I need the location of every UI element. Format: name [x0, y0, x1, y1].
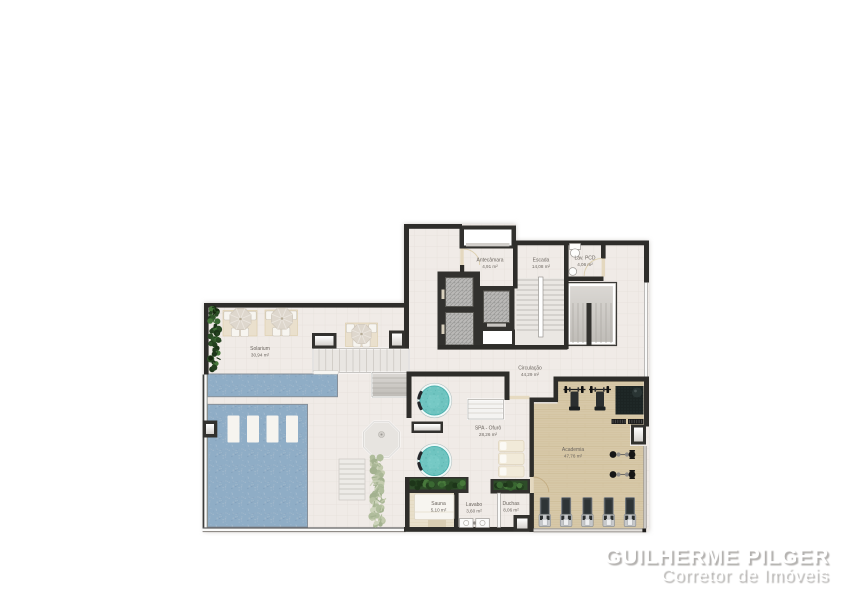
svg-text:Antecâmara: Antecâmara: [477, 258, 504, 264]
svg-text:44,29 m²: 44,29 m²: [521, 372, 540, 377]
svg-text:3,60 m²: 3,60 m²: [466, 509, 482, 514]
svg-text:Corretor de Imóveis: Corretor de Imóveis: [661, 565, 829, 585]
svg-text:Academia: Academia: [562, 447, 584, 453]
svg-text:Lav. PCD: Lav. PCD: [574, 256, 595, 262]
svg-text:30,94 m²: 30,94 m²: [251, 353, 270, 358]
svg-text:4,91 m²: 4,91 m²: [482, 264, 498, 269]
svg-text:SPA - Ofurô: SPA - Ofurô: [475, 426, 502, 432]
svg-text:Escada: Escada: [533, 258, 550, 264]
svg-text:8,06 m²: 8,06 m²: [503, 508, 519, 513]
svg-text:Duchas: Duchas: [503, 501, 520, 507]
svg-text:28,26 m²: 28,26 m²: [479, 432, 498, 437]
svg-text:Solarium: Solarium: [250, 346, 270, 352]
svg-text:4,06 m²: 4,06 m²: [577, 262, 593, 267]
svg-text:Sauna: Sauna: [431, 501, 446, 507]
svg-text:5,10 m²: 5,10 m²: [431, 508, 447, 513]
svg-text:Circulação: Circulação: [518, 366, 542, 372]
svg-text:Lavabo: Lavabo: [466, 502, 483, 508]
svg-text:14,08 m²: 14,08 m²: [532, 264, 551, 269]
svg-text:47,76 m²: 47,76 m²: [564, 454, 583, 459]
